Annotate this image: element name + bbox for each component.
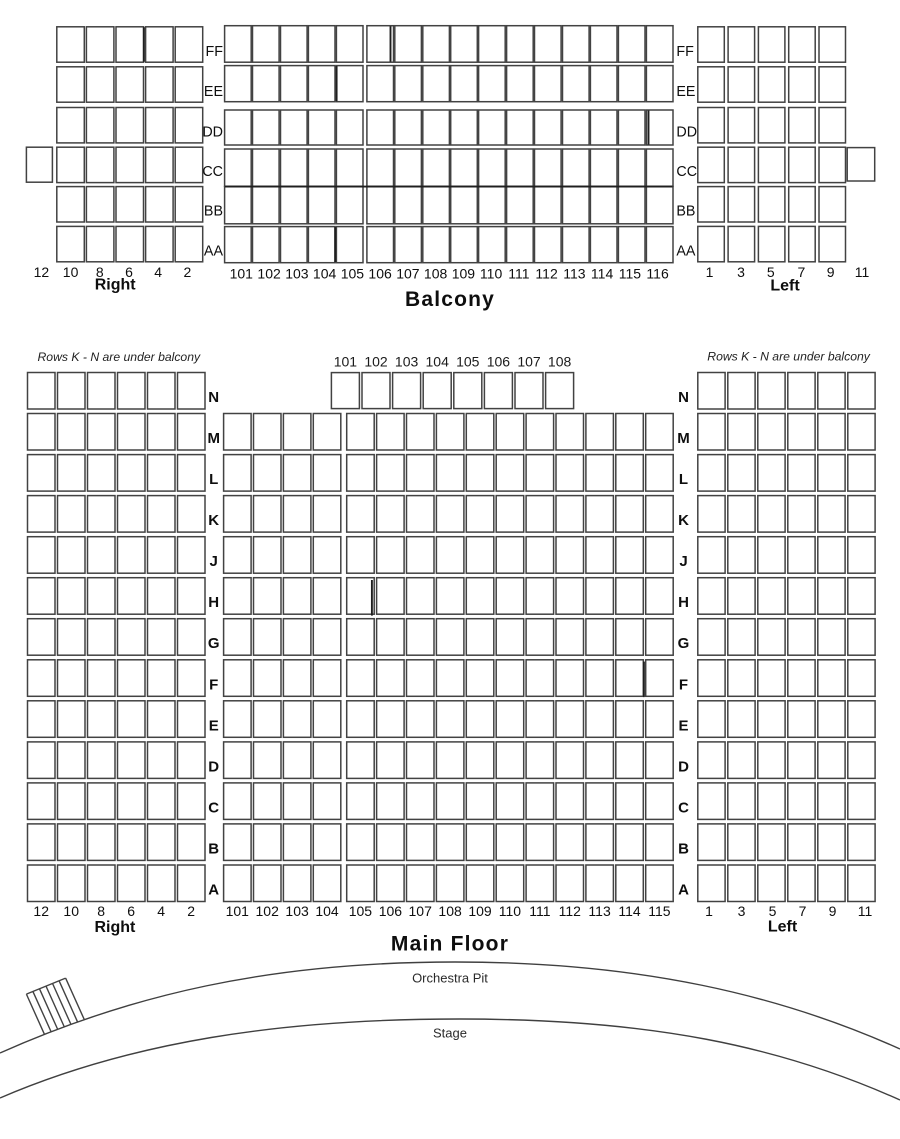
svg-text:9: 9: [827, 264, 835, 280]
svg-text:A: A: [678, 882, 689, 899]
svg-text:4: 4: [157, 903, 165, 919]
svg-text:E: E: [678, 717, 688, 734]
svg-text:110: 110: [480, 266, 503, 282]
svg-text:1: 1: [705, 903, 713, 919]
svg-text:104: 104: [426, 354, 450, 370]
svg-text:AA: AA: [676, 243, 696, 259]
svg-text:2: 2: [187, 903, 195, 919]
svg-text:Left: Left: [768, 919, 798, 936]
svg-text:3: 3: [738, 903, 746, 919]
svg-text:H: H: [678, 594, 689, 611]
svg-text:112: 112: [535, 266, 558, 282]
svg-text:106: 106: [368, 266, 392, 282]
svg-text:CC: CC: [676, 164, 697, 180]
svg-text:J: J: [210, 553, 218, 570]
svg-text:E: E: [209, 717, 219, 734]
svg-text:M: M: [207, 430, 220, 447]
svg-text:EE: EE: [676, 84, 695, 100]
svg-text:105: 105: [349, 903, 373, 919]
svg-text:C: C: [678, 799, 689, 816]
svg-text:9: 9: [829, 903, 837, 919]
svg-text:DD: DD: [676, 125, 697, 141]
svg-text:112: 112: [559, 903, 582, 919]
svg-text:12: 12: [34, 264, 50, 280]
svg-text:G: G: [208, 635, 220, 652]
svg-text:BB: BB: [204, 204, 223, 220]
svg-text:11: 11: [855, 264, 870, 280]
svg-text:102: 102: [257, 266, 281, 282]
svg-text:115: 115: [619, 266, 642, 282]
svg-text:103: 103: [285, 903, 309, 919]
svg-text:6: 6: [127, 903, 135, 919]
svg-text:110: 110: [499, 903, 522, 919]
svg-text:F: F: [209, 676, 218, 693]
svg-text:FF: FF: [206, 44, 224, 60]
svg-text:111: 111: [529, 903, 550, 919]
svg-text:104: 104: [315, 903, 339, 919]
svg-text:Main Floor: Main Floor: [391, 933, 509, 956]
svg-text:G: G: [678, 635, 690, 652]
svg-text:105: 105: [456, 354, 480, 370]
svg-text:D: D: [208, 758, 219, 775]
svg-text:107: 107: [517, 354, 541, 370]
svg-text:8: 8: [97, 903, 105, 919]
svg-text:104: 104: [313, 266, 337, 282]
svg-text:107: 107: [396, 266, 420, 282]
svg-text:102: 102: [256, 903, 280, 919]
svg-text:109: 109: [452, 266, 476, 282]
svg-text:101: 101: [334, 354, 358, 370]
svg-text:4: 4: [154, 264, 162, 280]
svg-text:106: 106: [379, 903, 403, 919]
svg-text:109: 109: [468, 903, 492, 919]
svg-text:F: F: [679, 676, 688, 693]
svg-text:107: 107: [409, 903, 433, 919]
svg-text:CC: CC: [202, 164, 223, 180]
svg-text:103: 103: [395, 354, 419, 370]
svg-text:K: K: [208, 512, 219, 529]
svg-text:L: L: [209, 471, 218, 488]
svg-text:K: K: [678, 512, 689, 529]
svg-text:10: 10: [63, 903, 79, 919]
svg-text:105: 105: [341, 266, 365, 282]
svg-text:BB: BB: [676, 204, 695, 220]
svg-text:102: 102: [364, 354, 388, 370]
svg-text:113: 113: [588, 903, 611, 919]
svg-text:M: M: [677, 430, 690, 447]
svg-text:108: 108: [438, 903, 462, 919]
svg-text:116: 116: [646, 266, 669, 282]
svg-text:C: C: [208, 799, 219, 816]
svg-text:113: 113: [563, 266, 586, 282]
svg-text:Orchestra Pit: Orchestra Pit: [412, 971, 488, 986]
svg-text:Right: Right: [94, 919, 136, 936]
svg-text:7: 7: [799, 903, 807, 919]
svg-text:B: B: [208, 840, 219, 857]
svg-text:114: 114: [591, 266, 614, 282]
svg-text:1: 1: [706, 264, 714, 280]
svg-text:L: L: [679, 471, 688, 488]
svg-text:Left: Left: [770, 277, 800, 294]
svg-text:Balcony: Balcony: [405, 288, 495, 311]
svg-text:106: 106: [487, 354, 511, 370]
svg-text:108: 108: [424, 266, 448, 282]
svg-text:101: 101: [230, 266, 254, 282]
svg-text:AA: AA: [204, 243, 224, 259]
svg-text:Stage: Stage: [433, 1026, 467, 1041]
svg-text:B: B: [678, 840, 689, 857]
svg-text:108: 108: [548, 354, 572, 370]
svg-text:5: 5: [769, 903, 777, 919]
svg-text:DD: DD: [202, 125, 223, 141]
svg-text:EE: EE: [204, 84, 223, 100]
svg-text:FF: FF: [676, 44, 694, 60]
svg-text:3: 3: [737, 264, 745, 280]
svg-text:D: D: [678, 758, 689, 775]
svg-text:114: 114: [618, 903, 641, 919]
svg-text:11: 11: [858, 903, 873, 919]
svg-text:H: H: [208, 594, 219, 611]
svg-text:Rows K - N are under balcony: Rows K - N are under balcony: [707, 350, 870, 364]
svg-text:111: 111: [508, 266, 529, 282]
svg-text:N: N: [208, 389, 219, 406]
svg-text:Rows K - N are under balcony: Rows K - N are under balcony: [38, 350, 201, 364]
svg-text:115: 115: [648, 903, 671, 919]
svg-text:103: 103: [285, 266, 309, 282]
svg-text:J: J: [679, 553, 687, 570]
svg-text:101: 101: [226, 903, 250, 919]
svg-text:N: N: [678, 389, 689, 406]
svg-text:2: 2: [184, 264, 192, 280]
svg-text:Right: Right: [95, 276, 137, 293]
svg-text:10: 10: [63, 264, 79, 280]
svg-text:12: 12: [33, 903, 49, 919]
svg-text:A: A: [208, 882, 219, 899]
